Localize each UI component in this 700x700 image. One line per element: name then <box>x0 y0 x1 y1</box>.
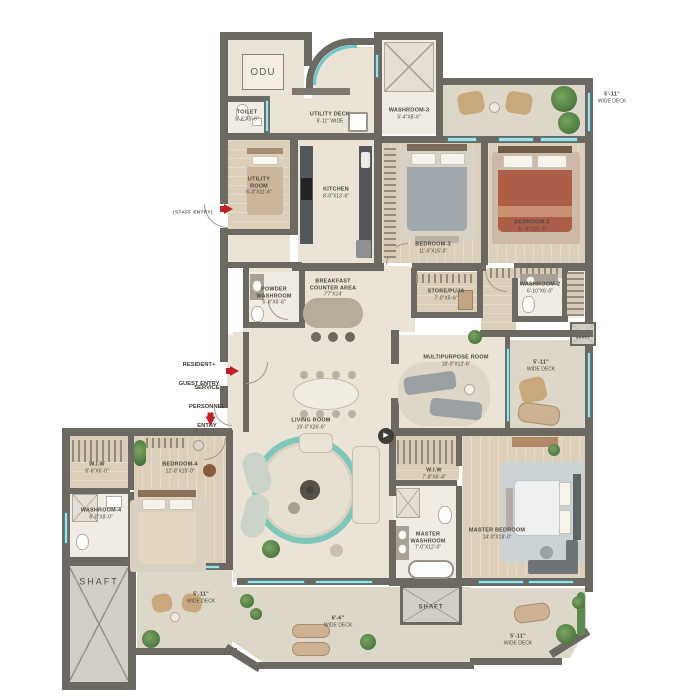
window <box>540 137 578 142</box>
wall-segment <box>374 139 382 265</box>
service-entry-arrow-icon <box>206 417 216 426</box>
coffee-table-small <box>288 502 300 514</box>
washroom2-toilet <box>522 296 535 313</box>
wall-segment <box>456 436 462 466</box>
wall-segment <box>393 428 593 436</box>
plant-icon <box>558 112 580 134</box>
dining-chair <box>348 371 356 379</box>
coffee-table <box>300 480 320 500</box>
bedroom2-throw <box>498 206 572 217</box>
deck-armchair <box>504 90 533 116</box>
kitchen-hob <box>301 178 312 200</box>
wall-segment <box>62 683 136 690</box>
dining-chair <box>348 410 356 418</box>
washing-machine <box>348 112 368 132</box>
wall-segment <box>391 330 399 364</box>
label-toilet: TOILET5'-6"X5'-6" <box>235 110 258 123</box>
odu-unit: ODU <box>242 54 284 90</box>
bedroom4-pillow <box>169 499 193 510</box>
window-slider <box>315 580 373 584</box>
window-slider <box>247 580 305 584</box>
pouf <box>330 544 343 557</box>
utility-bed-headboard <box>247 148 283 154</box>
label-utility-room: UTILITY ROOM6'-0"X11'-6" <box>246 176 272 195</box>
wall-segment <box>470 658 562 665</box>
washroom4-basin <box>106 496 122 508</box>
kitchen-sink <box>361 152 370 168</box>
window <box>64 512 68 544</box>
bedroom3-bed-blanket <box>407 167 467 231</box>
stool <box>328 332 338 342</box>
plant-icon <box>572 596 585 609</box>
label-breakfast: BREAKFAST COUNTER AREA7'7"X14' <box>310 278 357 297</box>
vent-strip <box>292 88 350 95</box>
wall-segment <box>389 436 396 496</box>
label-living-room: LIVING ROOM19'-0"X26'-6" <box>291 418 330 431</box>
bedroom4-bed-headboard <box>138 490 196 497</box>
window <box>587 352 591 418</box>
staff-entry-arrow-icon <box>224 204 233 214</box>
label-shaft-bottom-left: SHAFT <box>79 576 119 586</box>
label-shaft-bottom-mid: SHAFT <box>419 604 444 610</box>
plant-icon <box>142 630 160 648</box>
bathtub <box>408 560 454 579</box>
wall-segment <box>243 322 305 328</box>
wall-segment <box>62 557 134 564</box>
stool <box>345 332 355 342</box>
label-wiw-master: W.I.W7'-8"X6'-4" <box>422 468 445 481</box>
stool <box>311 332 321 342</box>
label-bedroom4: BEDROOM-412'-0"X15'-0" <box>162 462 197 475</box>
window-slider <box>506 348 510 422</box>
label-staff-entry: (STAFF ENTRY) <box>173 209 213 214</box>
wall-segment <box>133 648 237 655</box>
label-washroom3: WASHROOM-35'-4"X8'-6" <box>389 108 430 121</box>
wall-segment <box>220 228 228 362</box>
plant-icon <box>262 540 280 558</box>
bedroom4-dresser <box>146 438 186 448</box>
bedroom3-pillow <box>440 153 465 165</box>
plant-icon <box>556 624 576 644</box>
wiw4-closet <box>72 440 126 462</box>
desk-chair <box>540 546 553 559</box>
bedroom4-pouf <box>203 464 216 477</box>
label-store-puja: STORE/PUJA7'-0"X5'-6" <box>427 289 464 302</box>
dining-table <box>293 378 359 410</box>
label-deck-top-right: 5'-11"WIDE DECK <box>598 92 626 105</box>
window <box>478 580 524 584</box>
dining-chair <box>300 371 308 379</box>
wall-segment <box>436 32 443 142</box>
dining-chair <box>332 371 340 379</box>
label-powder-washroom: POWDER WASHROOM5'-0"X6'-6" <box>256 286 291 305</box>
wall-segment <box>228 229 292 235</box>
label-deck-right: 5'-11"WIDE DECK <box>527 360 555 373</box>
plant-icon <box>240 594 254 608</box>
plant-icon <box>548 444 560 456</box>
washroom3-shower <box>384 42 434 92</box>
wall-segment <box>512 316 568 322</box>
wall-segment <box>477 268 483 318</box>
bedroom3-wardrobe <box>384 148 396 258</box>
label-kitchen: KITCHEN8'-0"X13'-6" <box>323 187 349 200</box>
deck-side-table <box>170 612 180 622</box>
window <box>528 580 574 584</box>
master-shower <box>396 488 420 518</box>
wall-segment <box>374 32 382 140</box>
window <box>498 137 534 142</box>
label-multipurpose: MULTIPURPOSE ROOM18'-0"X12'-6" <box>423 355 488 368</box>
master-desk-return <box>566 540 578 564</box>
wall-segment <box>290 139 298 235</box>
wall-segment <box>292 263 384 271</box>
floor-plan-canvas: ODU <box>0 0 700 700</box>
wall-segment <box>374 32 443 40</box>
master-basin <box>398 544 407 554</box>
odu-label: ODU <box>250 67 275 78</box>
label-bedroom3: BEDROOM-311'-6"X15'-0" <box>415 242 450 255</box>
wall-segment <box>243 266 249 328</box>
bedroom2-bed-headboard <box>498 146 572 153</box>
bedroom4-bed-blanket <box>138 512 196 564</box>
label-shaft-right: SHAFT <box>576 335 590 339</box>
dining-chair <box>332 410 340 418</box>
wall-segment <box>456 486 462 582</box>
window <box>265 100 269 132</box>
label-master-bedroom: MASTER BEDROOM14'-0"X18'-0" <box>469 528 525 541</box>
label-bedroom2: BEDROOM-211'-6"X15'-0" <box>514 220 549 233</box>
dining-chair <box>316 371 324 379</box>
wall-segment <box>411 312 483 318</box>
master-basin <box>398 530 407 540</box>
master-bench <box>506 488 513 530</box>
deck-lounger <box>292 642 330 656</box>
utility-bed-pillow <box>252 156 278 165</box>
plant-icon <box>250 608 262 620</box>
deck-side-table <box>489 102 500 113</box>
plant-icon <box>551 86 577 112</box>
label-utility-deck: UTILITY DECK5'-11" WIDE <box>310 112 350 125</box>
label-deck-bottom-left: 5'-11"WIDE DECK <box>187 592 215 605</box>
label-washroom2: WASHROOM-26'-10"X6'-0" <box>520 282 561 295</box>
label-wiw4: W.I.W6'-6"X6'-0" <box>85 462 108 475</box>
plant-icon <box>134 440 146 466</box>
bedroom4-pillow <box>142 499 166 510</box>
store-shelf <box>416 274 474 283</box>
living-sofa-right <box>352 446 380 524</box>
side-table <box>464 384 475 395</box>
living-armchair <box>299 433 333 453</box>
powder-toilet <box>251 306 264 322</box>
washroom4-toilet <box>76 534 89 550</box>
bedroom2-pillow <box>537 155 567 168</box>
master-toilet <box>438 506 452 524</box>
master-bed-headboard <box>573 474 581 540</box>
wardrobe-nook-hatch <box>567 272 584 316</box>
label-master-washroom: MASTER WASHROOM7'-0"X12'-0" <box>410 531 445 550</box>
label-washroom4: WASHROOM-46'-0"X8'-0" <box>81 508 122 521</box>
wiw-master-closet <box>397 440 455 464</box>
bedroom4-mirror <box>193 440 204 451</box>
wall-segment <box>128 563 136 685</box>
label-deck-bottom-right: 5'-11"WIDE DECK <box>504 634 532 647</box>
wall-segment <box>389 520 396 582</box>
window <box>375 54 379 78</box>
wall-segment <box>481 143 488 265</box>
plant-icon <box>360 634 376 650</box>
bedroom2-pillow <box>503 155 533 168</box>
breakfast-island <box>303 298 363 328</box>
window <box>447 137 477 142</box>
wall-segment <box>226 430 233 570</box>
wall-segment <box>220 32 228 204</box>
plant-icon <box>468 330 482 344</box>
label-deck-bottom-mid: 6'-6"WIDE DECK <box>324 616 352 629</box>
wall-segment <box>393 480 457 486</box>
wall-segment <box>222 262 302 268</box>
wall-segment <box>443 78 593 85</box>
bedroom3-pillow <box>411 153 436 165</box>
media-play-icon: ▶ <box>378 428 394 444</box>
wall-segment <box>258 662 474 669</box>
resident-entry-arrow-icon <box>230 366 239 376</box>
wall-segment <box>228 133 382 140</box>
wall-segment <box>412 263 486 271</box>
wall-segment <box>220 32 312 40</box>
wall-segment <box>585 428 593 592</box>
fridge <box>356 240 371 258</box>
bedroom3-bed-headboard <box>407 144 467 151</box>
window <box>587 92 591 132</box>
